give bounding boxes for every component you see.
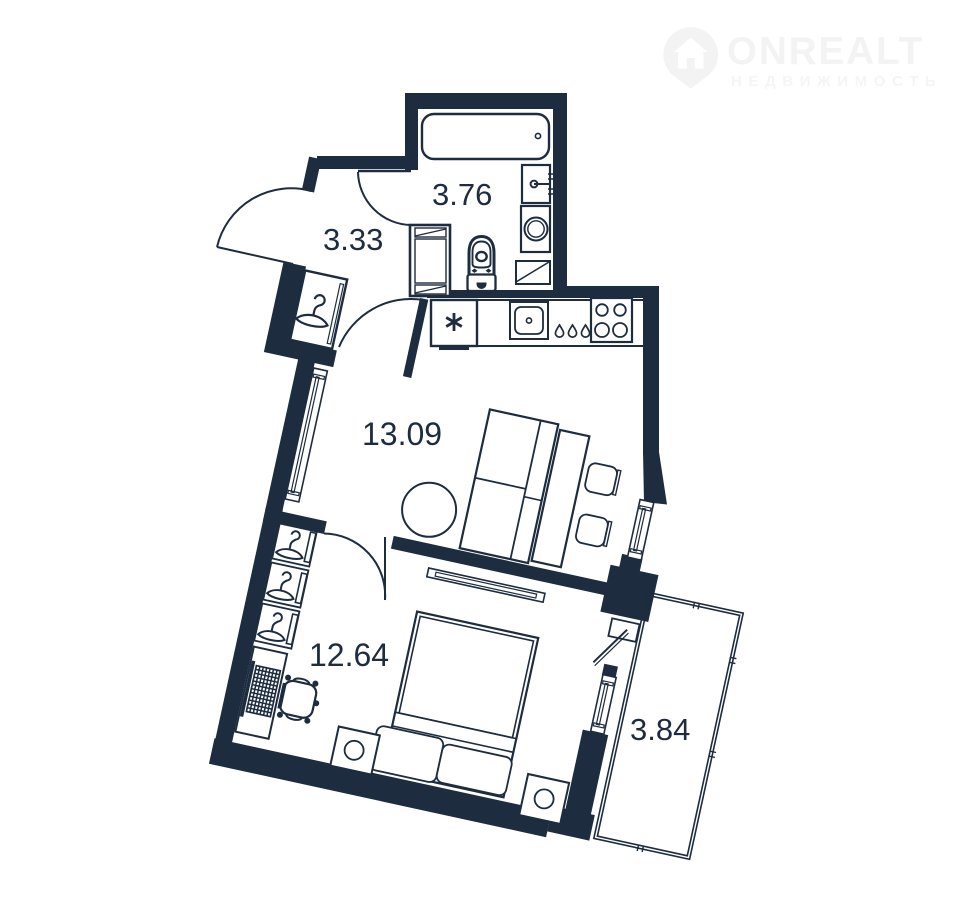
svg-text:3.33: 3.33 [323,222,383,257]
svg-text:НЕДВИЖИМОСТЬ: НЕДВИЖИМОСТЬ [731,73,942,90]
svg-text:13.09: 13.09 [362,416,442,452]
svg-text:ONREALT: ONREALT [727,30,924,73]
svg-text:12.64: 12.64 [309,637,389,673]
svg-text:3.84: 3.84 [630,712,690,747]
svg-text:3.76: 3.76 [432,177,492,212]
